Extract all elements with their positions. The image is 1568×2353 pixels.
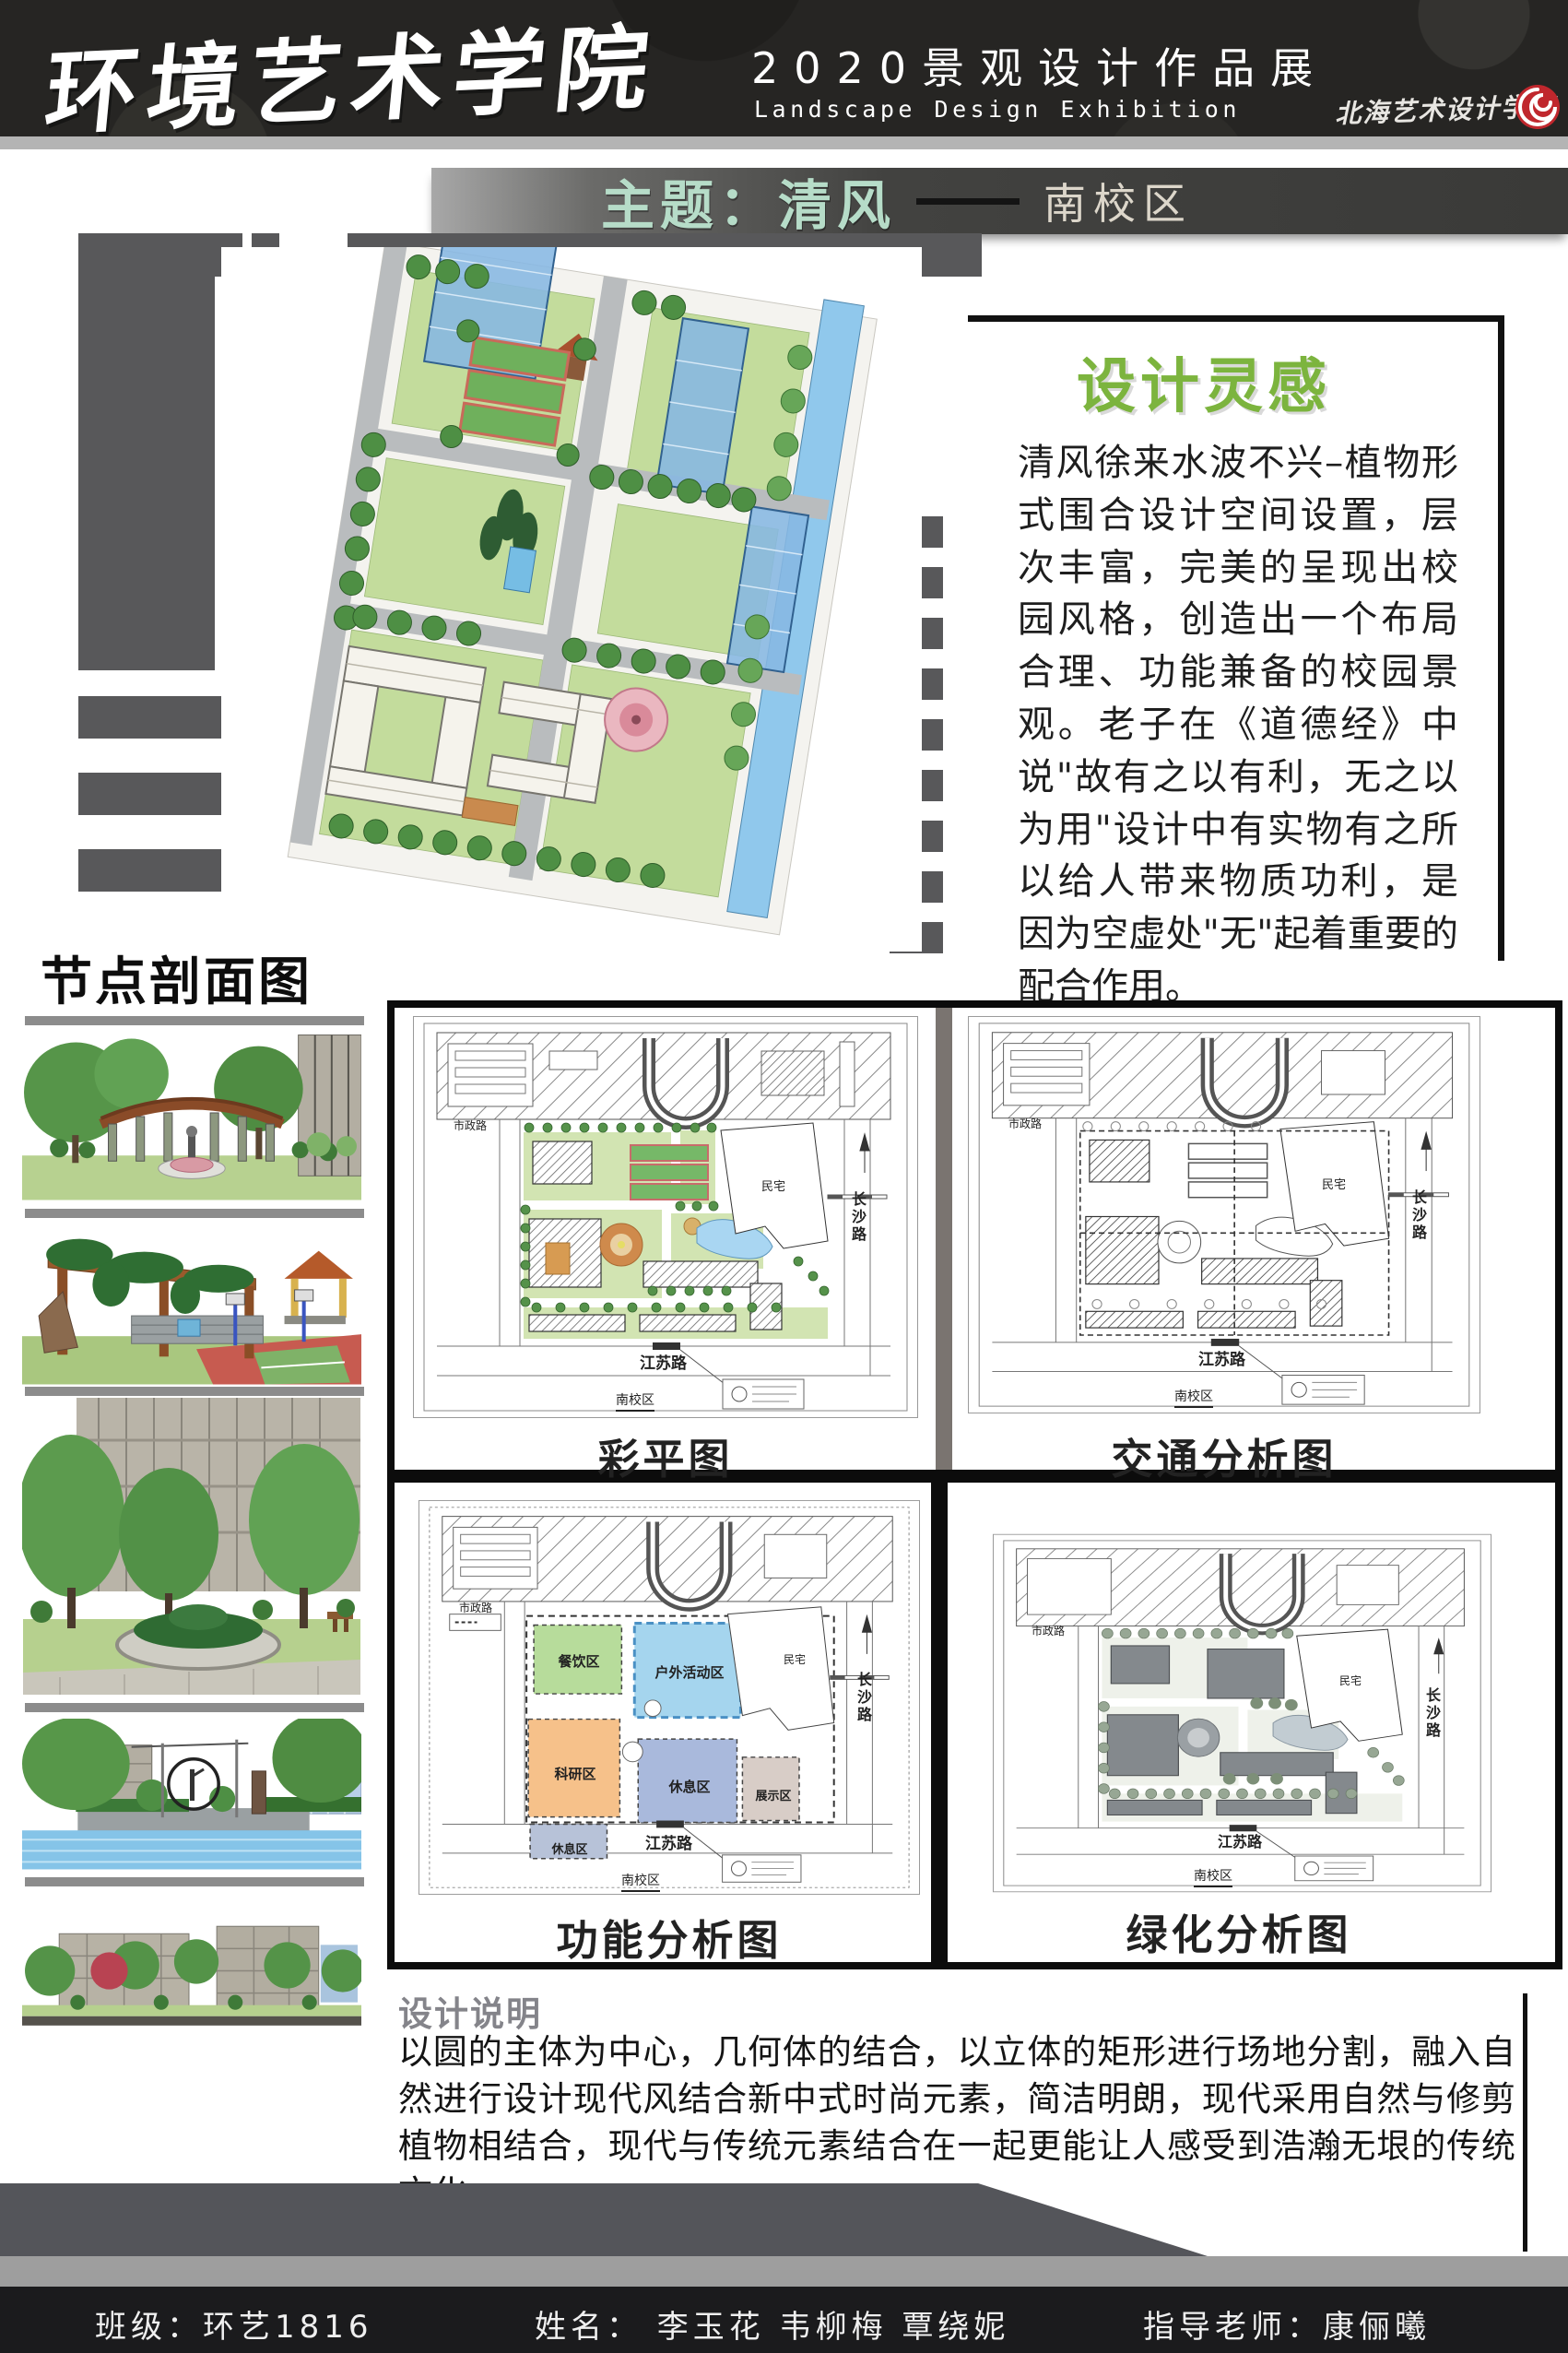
render-building-elevation [22,1916,361,2027]
render-circular-planter [22,1398,361,1695]
render-vine-pergola [22,1226,361,1385]
masterplan-render [221,247,922,952]
plan4-road-right-label: 长沙路 [1421,1687,1443,1740]
zone-dining-label: 餐饮区 [558,1651,599,1671]
plans-divider-bottom [931,1483,948,1962]
separator-bar-5 [25,1877,364,1886]
zone-exhibit-label: 展示区 [755,1786,791,1803]
deco-dash-1 [78,696,221,739]
zone-rest-a-label: 休息区 [668,1777,710,1796]
footer-class: 班级：环艺1816 [95,2301,373,2347]
plan4-title: 绿化分析图 [1126,1901,1351,1961]
school-title: 环境艺术学院 [40,0,664,152]
exhibition-title-en: Landscape Design Exhibition [754,96,1241,123]
plan3-residence-label: 民宅 [784,1651,806,1667]
plan2-title: 交通分析图 [1111,1425,1337,1485]
plan3-site-label: 南校区 [621,1871,660,1892]
plan3-title: 功能分析图 [556,1907,782,1967]
plan4-road-top-label: 市政路 [1032,1623,1065,1638]
plan2-road-right-label: 长沙路 [1407,1189,1429,1242]
plan-function-analysis: 餐饮区 户外活动区 科研区 休息区 休息区 展示区 市政路 长沙路 江苏路 南校… [417,1498,922,1897]
header-gray-strip [0,136,1568,149]
plan4-site-label: 南校区 [1194,1866,1232,1887]
banner-dash [916,198,1020,205]
accent-line-right [1498,315,1504,961]
plan1-residence-label: 民宅 [761,1176,785,1194]
plan3-road-top-label: 市政路 [459,1600,492,1615]
separator-bar-4 [25,1703,364,1712]
render-arc-pergola [22,1035,361,1200]
separator-bar-2 [25,1209,364,1218]
plan-traffic-analysis: 市政路 长沙路 江苏路 南校区 民宅 [966,1014,1482,1415]
node-section-title: 节点剖面图 [41,940,312,1015]
plans-divider-top [936,1008,952,1470]
render-ring-sculpture [22,1719,361,1870]
plan1-site-label: 南校区 [616,1390,654,1412]
inspiration-body: 清风徐来水波不兴–植物形式围合设计空间设置，层次丰富，完美的呈现出校园风格，创造… [1018,437,1458,1013]
deco-dash-2 [78,773,221,815]
deco-dash-3 [78,849,221,892]
poster-page: 环境艺术学院 2020景观设计作品展 Landscape Design Exhi… [0,0,1568,2353]
inspiration-title: 设计灵感 [1077,339,1331,424]
banner-theme-text: 主题：清风 [601,162,896,240]
exhibition-title-cn: 2020景观设计作品展 [751,35,1328,96]
plan1-title: 彩平图 [597,1425,733,1485]
theme-banner: 主题：清风 南校区 [431,168,1568,234]
footer-names: 姓名： 李玉花 韦柳梅 覃绕妮 [535,2301,1009,2347]
masterplan-illustration [221,247,922,952]
header-band: 环境艺术学院 2020景观设计作品展 Landscape Design Exhi… [0,0,1568,136]
footer-gray-band [0,2256,1568,2287]
zone-research-label: 科研区 [554,1764,595,1783]
plan4-road-bottom-label: 江苏路 [1218,1829,1262,1851]
plan2-road-bottom-label: 江苏路 [1198,1346,1245,1369]
plan1-road-right-label: 长沙路 [846,1191,868,1244]
plan1-road-bottom-label: 江苏路 [640,1350,687,1373]
accent-line-desc [1523,1993,1527,2252]
deco-l-bar-vertical [78,233,215,670]
swirl-logo-icon [1514,83,1562,131]
accent-line-top [968,315,1504,322]
deco-top-bar-a [78,233,201,277]
separator-bar-3 [25,1387,364,1396]
zone-rest-b-label: 休息区 [551,1839,587,1857]
banner-campus-text: 南校区 [1043,171,1193,231]
plan-greening-analysis: 市政路 长沙路 江苏路 南校区 民宅 [991,1532,1493,1894]
zone-outdoor-label: 户外活动区 [654,1662,724,1682]
plan2-residence-label: 民宅 [1322,1175,1346,1192]
plan-color-masterplan: 市政路 长沙路 江苏路 南校区 民宅 [411,1014,920,1420]
plan2-site-label: 南校区 [1174,1387,1213,1408]
plan3-road-bottom-label: 江苏路 [645,1830,692,1853]
plan3-road-right-label: 长沙路 [852,1672,874,1724]
separator-bar-1 [25,1016,364,1025]
plan1-road-top-label: 市政路 [454,1117,487,1133]
plan2-road-top-label: 市政路 [1008,1116,1042,1131]
footer-advisor: 指导老师：康俪曦 [1143,2301,1431,2347]
plans-divider-horizontal [387,1470,1562,1483]
plan4-residence-label: 民宅 [1339,1673,1362,1688]
